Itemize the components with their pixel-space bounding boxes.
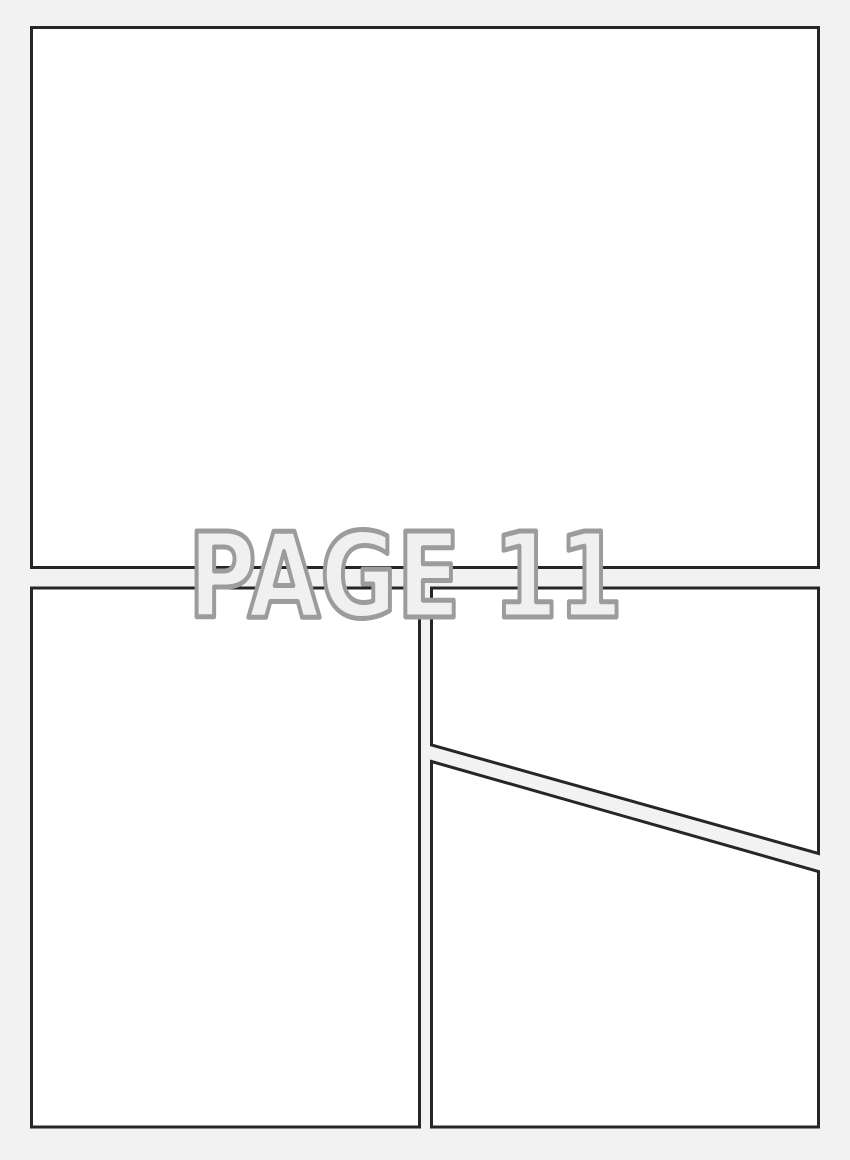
panel-top [32, 28, 819, 568]
comic-page-canvas: PAGE 11 [0, 0, 850, 1160]
comic-template-page: PAGE 11 [0, 0, 850, 1160]
panel-bottom-left [32, 588, 420, 1127]
page-number-watermark: PAGE 11 [188, 507, 623, 645]
